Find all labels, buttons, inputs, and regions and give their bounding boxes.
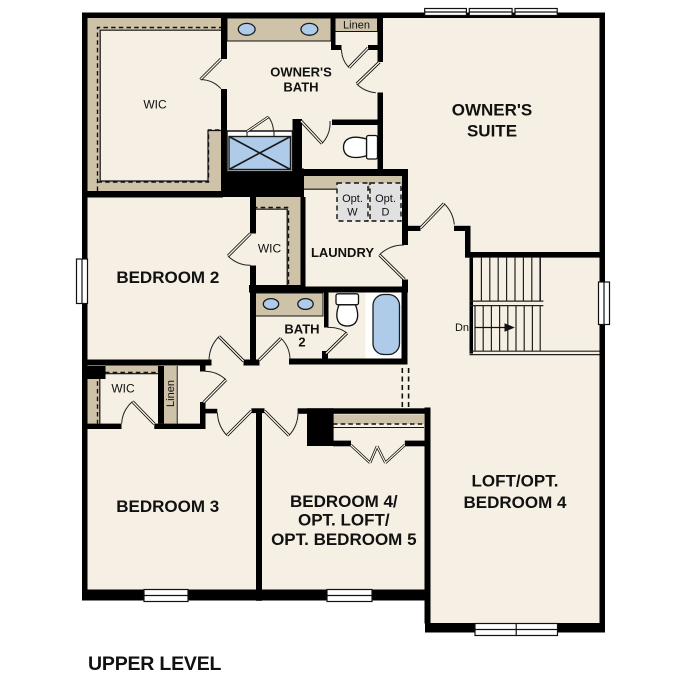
svg-text:BEDROOM 2: BEDROOM 2: [116, 268, 219, 287]
svg-text:Dn: Dn: [455, 322, 469, 334]
svg-text:LAUNDRY: LAUNDRY: [311, 245, 374, 260]
svg-text:WIC: WIC: [258, 241, 282, 255]
svg-text:BEDROOM 3: BEDROOM 3: [116, 497, 219, 516]
svg-text:2: 2: [298, 335, 305, 350]
svg-text:LOFT/OPT.: LOFT/OPT.: [472, 471, 559, 490]
svg-text:Opt.: Opt.: [342, 193, 363, 205]
svg-text:SUITE: SUITE: [467, 121, 517, 140]
svg-text:BEDROOM 4: BEDROOM 4: [464, 493, 568, 512]
svg-text:WIC: WIC: [111, 381, 135, 395]
svg-text:UPPER LEVEL: UPPER LEVEL: [88, 653, 222, 675]
svg-text:Linen: Linen: [343, 20, 370, 32]
svg-text:W: W: [347, 206, 358, 218]
svg-text:OWNER'S: OWNER'S: [452, 101, 533, 120]
svg-text:BATH: BATH: [283, 79, 318, 94]
svg-text:OWNER'S: OWNER'S: [270, 65, 332, 80]
svg-text:BEDROOM 4/: BEDROOM 4/: [290, 492, 398, 511]
svg-text:WIC: WIC: [143, 97, 167, 111]
svg-text:Opt.: Opt.: [375, 193, 396, 205]
svg-text:D: D: [382, 206, 390, 218]
svg-text:OPT. LOFT/: OPT. LOFT/: [298, 510, 390, 529]
svg-text:OPT. BEDROOM 5: OPT. BEDROOM 5: [271, 530, 416, 549]
svg-text:Linen: Linen: [165, 380, 177, 407]
